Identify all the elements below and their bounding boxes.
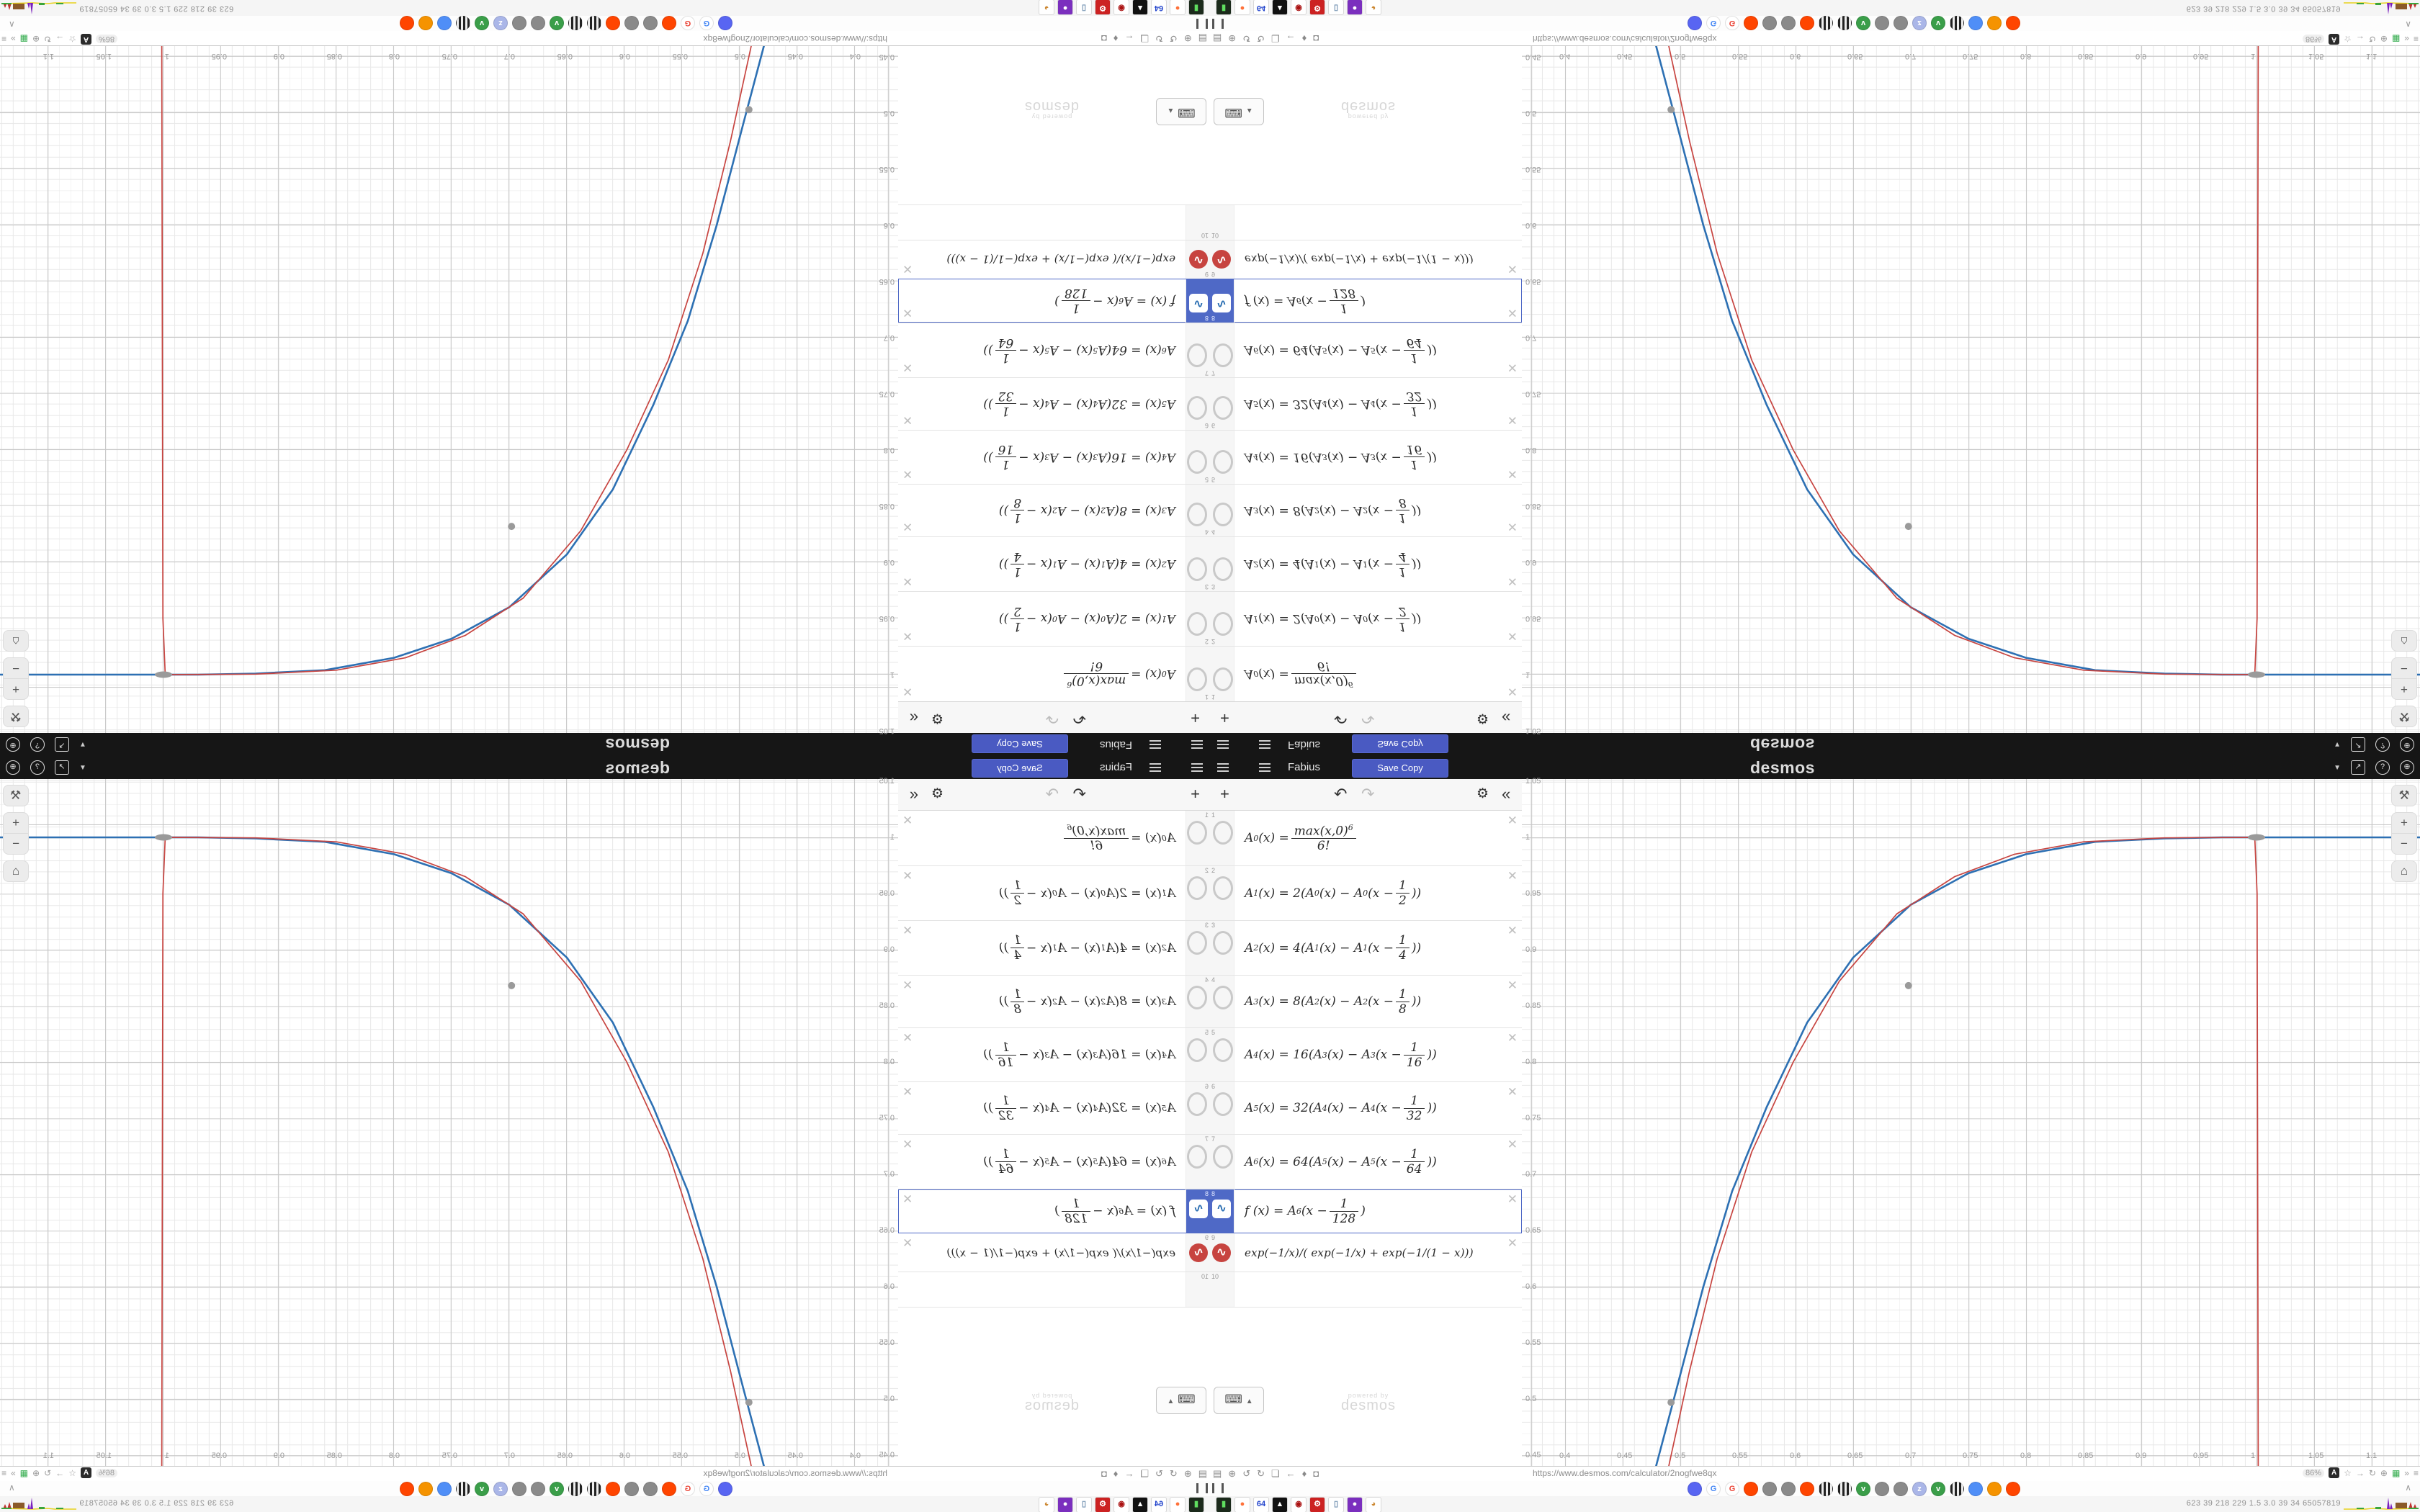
expression-row[interactable]: 8∿f (x) = A6(x − 1128)✕ <box>898 1189 1210 1233</box>
purple-cam-app-icon[interactable]: ● <box>1057 0 1073 15</box>
reddit-favicon[interactable] <box>606 16 620 30</box>
expression-math[interactable]: f (x) = A6(x − 1128) <box>920 279 1175 323</box>
expression-math[interactable]: f (x) = A6(x − 1128) <box>920 1189 1175 1233</box>
green-v-favicon[interactable]: v <box>1931 16 1945 30</box>
expression-row[interactable]: 6A5(x) = 32(A4(x) − A4(x − 132))✕ <box>898 377 1210 430</box>
back-reload-icon[interactable]: ↻ <box>1257 1467 1265 1480</box>
wrench-icon[interactable]: ⚒ <box>2392 786 2416 806</box>
delete-row-button[interactable]: ✕ <box>1507 360 1518 374</box>
lock-icon[interactable]: ◘ <box>1313 32 1319 45</box>
show-keypad-button[interactable]: ⌨ ▲ <box>1214 1387 1264 1414</box>
wrench-icon[interactable]: ⚒ <box>4 786 28 806</box>
hidden-plot-toggle[interactable] <box>1213 986 1233 1009</box>
bat-favicon[interactable] <box>512 1482 526 1496</box>
notepad-app-icon[interactable]: ▯ <box>1328 1497 1344 1512</box>
red-gear-app-icon[interactable]: ⚙ <box>1309 1497 1325 1512</box>
globe-icon[interactable]: ⊕ <box>1184 32 1192 45</box>
expression-math[interactable]: exp(−1/x)/( exp(−1/x) + exp(−1/(1 − x))) <box>920 1233 1175 1272</box>
translate-icon[interactable]: A <box>2329 1467 2339 1478</box>
expression-row[interactable]: 8∿f (x) = A6(x − 1128)✕ <box>898 279 1210 323</box>
zoom-out-button[interactable]: − <box>2392 833 2416 854</box>
expression-math[interactable]: A6(x) = 64(A5(x) − A5(x − 164)) <box>920 323 1175 377</box>
menu-icon[interactable]: ≡ <box>1 1468 6 1478</box>
blue-curve-icon[interactable]: ∿ <box>1212 294 1231 312</box>
firefox-app-icon[interactable]: ● <box>1170 1497 1186 1512</box>
floppy-64-app-icon[interactable]: 64 <box>1253 0 1269 15</box>
caret-down-icon[interactable]: ▼ <box>79 741 86 749</box>
delete-row-button[interactable]: ✕ <box>902 684 913 698</box>
menu-icon[interactable]: ≡ <box>2414 35 2419 45</box>
reload-icon[interactable]: ↻ <box>2369 35 2376 45</box>
delete-row-button[interactable]: ✕ <box>1507 574 1518 588</box>
expression-row[interactable]: 9∿exp(−1/x)/( exp(−1/x) + exp(−1/(1 − x)… <box>1210 1233 1522 1272</box>
add-expression-button[interactable]: + <box>1220 708 1229 727</box>
arrow-right-icon[interactable]: → <box>2356 35 2365 45</box>
bat-favicon[interactable] <box>512 16 526 30</box>
menu-hamburger-icon[interactable] <box>1216 761 1230 774</box>
terminal-app-icon[interactable]: ▮ <box>1216 0 1232 15</box>
hidden-plot-toggle[interactable] <box>1187 450 1207 474</box>
save-copy-button[interactable]: Save Copy <box>972 759 1068 778</box>
hidden-plot-toggle[interactable] <box>1187 876 1207 900</box>
palette-app-icon[interactable]: ◕ <box>1366 0 1381 15</box>
back-reload-icon[interactable]: ↻ <box>1155 1467 1163 1480</box>
menu-icon[interactable]: ≡ <box>2414 1468 2419 1478</box>
redo-button[interactable]: ↷ <box>1361 785 1374 804</box>
red-badge-app-icon[interactable]: ◉ <box>1291 1497 1307 1512</box>
reload-icon[interactable]: ↻ <box>44 35 51 45</box>
globe-icon[interactable]: ⊕ <box>6 737 20 752</box>
google-favicon[interactable]: G <box>681 1482 695 1496</box>
translate-icon[interactable]: A <box>81 34 91 45</box>
bat-favicon[interactable] <box>1894 16 1908 30</box>
hidden-plot-toggle[interactable] <box>1213 931 1233 955</box>
hidden-plot-toggle[interactable] <box>1213 612 1233 636</box>
delete-row-button[interactable]: ✕ <box>1507 1085 1518 1099</box>
palette-app-icon[interactable]: ◕ <box>1039 1497 1054 1512</box>
delete-row-button[interactable]: ✕ <box>1507 684 1518 698</box>
chat-favicon[interactable] <box>437 16 452 30</box>
discord-favicon[interactable] <box>1688 16 1702 30</box>
hidden-plot-toggle[interactable] <box>1213 343 1233 367</box>
url-text[interactable]: https://www.desmos.com/calculator/2nogfw… <box>1533 34 1716 44</box>
chevron-up-icon[interactable]: ∧ <box>9 19 15 30</box>
expression-math[interactable]: A0(x) = max(x,0)66! <box>920 647 1175 701</box>
bat-favicon[interactable] <box>531 16 545 30</box>
expression-math[interactable]: exp(−1/x)/( exp(−1/x) + exp(−1/(1 − x))) <box>1245 240 1500 279</box>
undo-button[interactable]: ↶ <box>1334 708 1347 727</box>
puzzle-icon[interactable]: ▦ <box>20 35 28 45</box>
expression-row[interactable]: 8∿f (x) = A6(x − 1128)✕ <box>1210 1189 1522 1233</box>
delete-row-button[interactable]: ✕ <box>902 261 913 276</box>
floppy-64-app-icon[interactable]: 64 <box>1151 1497 1167 1512</box>
green-v-favicon[interactable]: v <box>550 16 564 30</box>
graph-title[interactable]: Fabius <box>1100 761 1132 773</box>
trash-icon[interactable]: ▤ <box>1213 32 1222 45</box>
help-icon[interactable]: ? <box>30 737 45 752</box>
bat-favicon[interactable] <box>1762 1482 1777 1496</box>
folder-icon[interactable]: ❏ <box>1140 1467 1149 1480</box>
delete-row-button[interactable]: ✕ <box>1507 519 1518 534</box>
expression-row[interactable]: 3A2(x) = 4(A1(x) − A1(x − 14))✕ <box>1210 921 1522 976</box>
lock-icon[interactable]: ◘ <box>1313 1467 1319 1480</box>
zoom-level-chip[interactable]: 86% <box>96 1469 117 1477</box>
redo-button[interactable]: ↷ <box>1046 708 1059 727</box>
hidden-plot-toggle[interactable] <box>1187 343 1207 367</box>
sleep-favicon[interactable]: z <box>493 1482 508 1496</box>
globe-icon[interactable]: ⊕ <box>6 760 20 775</box>
zoom-in-button[interactable]: + <box>2392 813 2416 833</box>
add-expression-button[interactable]: + <box>1220 785 1229 804</box>
red-curve-icon[interactable]: ∿ <box>1189 1243 1208 1262</box>
graph-settings-gear-icon[interactable]: ⚙ <box>1476 708 1489 727</box>
globe-icon[interactable]: ⊕ <box>2380 35 2388 45</box>
shield-icon[interactable]: ♦ <box>1302 32 1307 45</box>
reddit-favicon[interactable] <box>400 16 414 30</box>
hidden-plot-toggle[interactable] <box>1213 1145 1233 1169</box>
menu-hamburger-icon[interactable] <box>1190 738 1204 751</box>
expression-math[interactable]: A5(x) = 32(A4(x) − A4(x − 132)) <box>920 378 1175 430</box>
back-reload-icon[interactable]: ↻ <box>1155 32 1163 45</box>
collapse-panel-button[interactable]: « <box>1502 708 1510 727</box>
expression-row[interactable]: 5A4(x) = 16(A3(x) − A3(x − 116))✕ <box>898 430 1210 484</box>
expression-row[interactable]: 5A4(x) = 16(A3(x) − A3(x − 116))✕ <box>1210 430 1522 484</box>
redo-button[interactable]: ↷ <box>1046 785 1059 804</box>
discord-favicon[interactable] <box>1688 1482 1702 1496</box>
green-v-favicon[interactable]: v <box>475 16 489 30</box>
reddit-favicon[interactable] <box>1800 1482 1814 1496</box>
expression-row[interactable]: 3A2(x) = 4(A1(x) − A1(x − 14))✕ <box>898 921 1210 976</box>
expression-math[interactable]: A1(x) = 2(A0(x) − A0(x − 12)) <box>920 866 1175 920</box>
expression-math[interactable]: f (x) = A6(x − 1128) <box>1245 1189 1500 1233</box>
bat-favicon[interactable] <box>1781 16 1796 30</box>
hidden-plot-toggle[interactable] <box>1187 557 1207 581</box>
hidden-plot-toggle[interactable] <box>1187 931 1207 955</box>
globe-icon[interactable]: ⊕ <box>2380 1468 2388 1478</box>
delete-row-button[interactable]: ✕ <box>1507 924 1518 938</box>
archive-favicon[interactable] <box>568 1482 583 1496</box>
gear-favicon[interactable] <box>418 1482 433 1496</box>
bat-favicon[interactable] <box>1875 1482 1889 1496</box>
discord-favicon[interactable] <box>718 1482 732 1496</box>
delete-row-button[interactable]: ✕ <box>902 467 913 481</box>
delete-row-button[interactable]: ✕ <box>902 519 913 534</box>
zoom-in-button[interactable]: + <box>4 679 28 699</box>
purple-cam-app-icon[interactable]: ● <box>1057 1497 1073 1512</box>
home-button[interactable]: ⌂ <box>2392 631 2416 651</box>
delete-row-button[interactable]: ✕ <box>1507 1236 1518 1251</box>
reload-icon[interactable]: ↺ <box>1170 32 1178 45</box>
red-gear-app-icon[interactable]: ⚙ <box>1095 1497 1111 1512</box>
reddit-favicon[interactable] <box>1744 16 1758 30</box>
floppy-64-app-icon[interactable]: 64 <box>1151 0 1167 15</box>
collapse-panel-button[interactable]: « <box>1502 785 1510 804</box>
expression-math[interactable]: A6(x) = 64(A5(x) − A5(x − 164)) <box>1245 323 1500 377</box>
hidden-plot-toggle[interactable] <box>1187 1092 1207 1116</box>
delete-row-button[interactable]: ✕ <box>1507 261 1518 276</box>
expression-row[interactable]: 4A3(x) = 8(A2(x) − A2(x − 18))✕ <box>898 976 1210 1028</box>
bat-favicon[interactable] <box>643 1482 658 1496</box>
trash-icon[interactable]: ▤ <box>1198 32 1207 45</box>
expression-math[interactable]: f (x) = A6(x − 1128) <box>1245 279 1500 323</box>
expression-row[interactable]: 9∿exp(−1/x)/( exp(−1/x) + exp(−1/(1 − x)… <box>898 1233 1210 1272</box>
expression-row[interactable]: 4A3(x) = 8(A2(x) − A2(x − 18))✕ <box>1210 484 1522 536</box>
share-icon[interactable]: ↗ <box>2351 760 2365 775</box>
green-v-favicon[interactable]: v <box>475 1482 489 1496</box>
hidden-plot-toggle[interactable] <box>1213 1092 1233 1116</box>
menu-hamburger-icon[interactable] <box>1190 761 1204 774</box>
expression-math[interactable] <box>1245 205 1500 240</box>
delete-row-button[interactable]: ✕ <box>1507 1138 1518 1152</box>
expression-math[interactable] <box>920 1272 1175 1307</box>
expression-math[interactable]: A3(x) = 8(A2(x) − A2(x − 18)) <box>920 976 1175 1027</box>
reddit-favicon[interactable] <box>400 1482 414 1496</box>
expression-row[interactable]: 7A6(x) = 64(A5(x) − A5(x − 164))✕ <box>898 1135 1210 1189</box>
undo-button[interactable]: ↶ <box>1073 785 1086 804</box>
delete-row-button[interactable]: ✕ <box>902 360 913 374</box>
list-hamburger-icon[interactable] <box>1258 761 1272 774</box>
bat-favicon[interactable] <box>1781 1482 1796 1496</box>
green-v-favicon[interactable]: v <box>1931 1482 1945 1496</box>
expression-math[interactable]: A4(x) = 16(A3(x) − A3(x − 116)) <box>1245 1028 1500 1081</box>
expression-row[interactable]: 6A5(x) = 32(A4(x) − A4(x − 132))✕ <box>898 1082 1210 1135</box>
shield-icon[interactable]: ♦ <box>1113 32 1119 45</box>
gear-favicon[interactable] <box>418 16 433 30</box>
folder-icon[interactable]: ❏ <box>1271 32 1280 45</box>
help-icon[interactable]: ? <box>30 760 45 775</box>
lock-icon[interactable]: ◘ <box>1101 1467 1107 1480</box>
wolf-app-icon[interactable]: ▲ <box>1132 1497 1148 1512</box>
star-icon[interactable]: ☆ <box>2344 1468 2352 1478</box>
wrench-icon[interactable]: ⚒ <box>2392 706 2416 726</box>
reload-icon[interactable]: ↺ <box>1170 1467 1178 1480</box>
floppy-64-app-icon[interactable]: 64 <box>1253 1497 1269 1512</box>
gear-favicon[interactable] <box>1987 1482 2002 1496</box>
delete-row-button[interactable]: ✕ <box>1507 1192 1518 1207</box>
reddit-favicon[interactable] <box>662 16 676 30</box>
shield-icon[interactable]: ♦ <box>1113 1467 1119 1480</box>
expression-math[interactable]: A1(x) = 2(A0(x) − A0(x − 12)) <box>920 592 1175 646</box>
expression-row[interactable]: 2A1(x) = 2(A0(x) − A0(x − 12))✕ <box>898 866 1210 921</box>
expression-math[interactable]: A2(x) = 4(A1(x) − A1(x − 14)) <box>920 921 1175 975</box>
archive-favicon[interactable] <box>587 16 601 30</box>
url-text[interactable]: https://www.desmos.com/calculator/2nogfw… <box>1533 1468 1716 1478</box>
expression-row[interactable]: 6A5(x) = 32(A4(x) − A4(x − 132))✕ <box>1210 377 1522 430</box>
overflow-icon[interactable]: » <box>11 1468 16 1478</box>
hidden-plot-toggle[interactable] <box>1213 557 1233 581</box>
reddit-favicon[interactable] <box>1744 1482 1758 1496</box>
undo-button[interactable]: ↶ <box>1073 708 1086 727</box>
chevron-up-icon[interactable]: ∧ <box>2405 1482 2411 1493</box>
expression-math[interactable]: A4(x) = 16(A3(x) − A3(x − 116)) <box>920 1028 1175 1081</box>
graph-paper[interactable]: 1.0510.950.90.850.80.750.70.650.60.550.5… <box>1522 779 2420 1466</box>
home-button[interactable]: ⌂ <box>4 861 28 881</box>
blue-curve-icon[interactable]: ∿ <box>1189 1200 1208 1218</box>
google-favicon[interactable]: G <box>699 1482 714 1496</box>
delete-row-button[interactable]: ✕ <box>902 1138 913 1152</box>
wolf-app-icon[interactable]: ▲ <box>1272 1497 1288 1512</box>
expression-row[interactable]: 1A0(x) = max(x,0)66!✕ <box>898 646 1210 701</box>
hidden-plot-toggle[interactable] <box>1187 667 1207 691</box>
star-icon[interactable]: ☆ <box>68 35 76 45</box>
expression-math[interactable]: exp(−1/x)/( exp(−1/x) + exp(−1/(1 − x))) <box>1245 1233 1500 1272</box>
list-hamburger-icon[interactable] <box>1148 761 1162 774</box>
show-keypad-button[interactable]: ⌨ ▲ <box>1214 98 1264 125</box>
red-curve-icon[interactable]: ∿ <box>1189 250 1208 269</box>
back-arrow-icon[interactable]: ← <box>1124 32 1134 45</box>
google-favicon[interactable]: G <box>1725 16 1739 30</box>
hidden-plot-toggle[interactable] <box>1187 821 1207 845</box>
puzzle-icon[interactable]: ▦ <box>2392 35 2400 45</box>
expression-math[interactable]: exp(−1/x)/( exp(−1/x) + exp(−1/(1 − x))) <box>920 240 1175 279</box>
zoom-out-button[interactable]: − <box>2392 658 2416 679</box>
bat-favicon[interactable] <box>624 16 639 30</box>
google-favicon[interactable]: G <box>1706 16 1721 30</box>
star-icon[interactable]: ☆ <box>2344 35 2352 45</box>
hidden-plot-toggle[interactable] <box>1213 876 1233 900</box>
expression-row[interactable]: 2A1(x) = 2(A0(x) − A0(x − 12))✕ <box>1210 866 1522 921</box>
google-favicon[interactable]: G <box>1725 1482 1739 1496</box>
expression-math[interactable]: A4(x) = 16(A3(x) − A3(x − 116)) <box>1245 431 1500 484</box>
overflow-icon[interactable]: » <box>2404 1468 2409 1478</box>
graph-title[interactable]: Fabius <box>1100 739 1132 751</box>
discord-favicon[interactable] <box>718 16 732 30</box>
puzzle-icon[interactable]: ▦ <box>2392 1468 2400 1478</box>
notepad-app-icon[interactable]: ▯ <box>1076 1497 1092 1512</box>
url-text[interactable]: https://www.desmos.com/calculator/2nogfw… <box>704 1468 887 1478</box>
terminal-app-icon[interactable]: ▮ <box>1188 0 1204 15</box>
expression-row[interactable]: 10 <box>1210 1272 1522 1308</box>
delete-row-button[interactable]: ✕ <box>902 629 913 643</box>
expression-row[interactable]: 10 <box>1210 204 1522 240</box>
globe-icon[interactable]: ⊕ <box>1184 1467 1192 1480</box>
expression-math[interactable]: A1(x) = 2(A0(x) − A0(x − 12)) <box>1245 592 1500 646</box>
expression-math[interactable] <box>1245 1272 1500 1307</box>
trash-icon[interactable]: ▤ <box>1198 1467 1207 1480</box>
delete-row-button[interactable]: ✕ <box>1507 814 1518 828</box>
zoom-in-button[interactable]: + <box>4 813 28 833</box>
back-arrow-icon[interactable]: ← <box>1124 1467 1134 1480</box>
expression-row[interactable]: 1A0(x) = max(x,0)66!✕ <box>1210 811 1522 866</box>
green-v-favicon[interactable]: v <box>550 1482 564 1496</box>
back-arrow-icon[interactable]: ← <box>1286 1467 1296 1480</box>
sleep-favicon[interactable]: z <box>1912 1482 1927 1496</box>
google-favicon[interactable]: G <box>681 16 695 30</box>
green-v-favicon[interactable]: v <box>1856 1482 1870 1496</box>
graph-title[interactable]: Fabius <box>1288 761 1320 773</box>
delete-row-button[interactable]: ✕ <box>902 1236 913 1251</box>
reload-icon[interactable]: ↻ <box>2369 1468 2376 1478</box>
purple-cam-app-icon[interactable]: ● <box>1347 0 1363 15</box>
delete-row-button[interactable]: ✕ <box>902 1031 913 1045</box>
undo-button[interactable]: ↶ <box>1334 785 1347 804</box>
chat-favicon[interactable] <box>437 1482 452 1496</box>
expression-row[interactable]: 4A3(x) = 8(A2(x) − A2(x − 18))✕ <box>1210 976 1522 1028</box>
terminal-app-icon[interactable]: ▮ <box>1188 1497 1204 1512</box>
expression-row[interactable]: 1A0(x) = max(x,0)66!✕ <box>1210 646 1522 701</box>
wrench-icon[interactable]: ⚒ <box>4 706 28 726</box>
globe-icon[interactable]: ⊕ <box>1228 1467 1236 1480</box>
hidden-plot-toggle[interactable] <box>1213 1038 1233 1062</box>
puzzle-icon[interactable]: ▦ <box>20 1468 28 1478</box>
zoom-out-button[interactable]: − <box>4 833 28 854</box>
list-hamburger-icon[interactable] <box>1148 738 1162 751</box>
overflow-icon[interactable]: » <box>11 35 16 45</box>
red-curve-icon[interactable]: ∿ <box>1212 250 1231 269</box>
help-icon[interactable]: ? <box>2375 760 2390 775</box>
chevron-up-icon[interactable]: ∧ <box>2405 19 2411 30</box>
expression-math[interactable]: A2(x) = 4(A1(x) − A1(x − 14)) <box>1245 537 1500 591</box>
archive-favicon[interactable] <box>1819 16 1833 30</box>
expression-row[interactable]: 9∿exp(−1/x)/( exp(−1/x) + exp(−1/(1 − x)… <box>898 240 1210 279</box>
hidden-plot-toggle[interactable] <box>1213 503 1233 526</box>
archive-favicon[interactable] <box>1837 16 1852 30</box>
delete-row-button[interactable]: ✕ <box>1507 413 1518 427</box>
firefox-app-icon[interactable]: ● <box>1234 0 1250 15</box>
expression-math[interactable]: A2(x) = 4(A1(x) − A1(x − 14)) <box>1245 921 1500 975</box>
globe-icon[interactable]: ⊕ <box>32 35 40 45</box>
expression-math[interactable]: A3(x) = 8(A2(x) − A2(x − 18)) <box>1245 485 1500 536</box>
google-favicon[interactable]: G <box>1706 1482 1721 1496</box>
reddit-favicon[interactable] <box>2006 1482 2020 1496</box>
chevron-up-icon[interactable]: ∧ <box>9 1482 15 1493</box>
hidden-plot-toggle[interactable] <box>1187 1145 1207 1169</box>
hidden-plot-toggle[interactable] <box>1187 396 1207 420</box>
expression-math[interactable]: A0(x) = max(x,0)66! <box>920 811 1175 865</box>
expression-math[interactable]: A5(x) = 32(A4(x) − A4(x − 132)) <box>1245 1082 1500 1134</box>
expression-row[interactable]: 2A1(x) = 2(A0(x) − A0(x − 12))✕ <box>1210 591 1522 646</box>
graph-settings-gear-icon[interactable]: ⚙ <box>931 785 944 804</box>
show-keypad-button[interactable]: ⌨ ▲ <box>1156 98 1206 125</box>
delete-row-button[interactable]: ✕ <box>1507 467 1518 481</box>
caret-down-icon[interactable]: ▼ <box>2334 741 2341 749</box>
purple-cam-app-icon[interactable]: ● <box>1347 1497 1363 1512</box>
overflow-icon[interactable]: » <box>2404 35 2409 45</box>
lock-icon[interactable]: ◘ <box>1101 32 1107 45</box>
bat-favicon[interactable] <box>624 1482 639 1496</box>
delete-row-button[interactable]: ✕ <box>1507 305 1518 320</box>
graph-paper[interactable]: 1.0510.950.90.850.80.750.70.650.60.550.5… <box>0 779 898 1466</box>
red-gear-app-icon[interactable]: ⚙ <box>1095 0 1111 15</box>
delete-row-button[interactable]: ✕ <box>902 978 913 993</box>
url-text[interactable]: https://www.desmos.com/calculator/2nogfw… <box>704 34 887 44</box>
menu-icon[interactable]: ≡ <box>1 35 6 45</box>
blue-curve-icon[interactable]: ∿ <box>1212 1200 1231 1218</box>
reload-icon[interactable]: ↺ <box>1242 32 1250 45</box>
hidden-plot-toggle[interactable] <box>1213 667 1233 691</box>
save-copy-button[interactable]: Save Copy <box>1352 734 1448 753</box>
archive-favicon[interactable] <box>568 16 583 30</box>
archive-favicon[interactable] <box>1819 1482 1833 1496</box>
notepad-app-icon[interactable]: ▯ <box>1328 0 1344 15</box>
hidden-plot-toggle[interactable] <box>1187 503 1207 526</box>
delete-row-button[interactable]: ✕ <box>902 924 913 938</box>
expression-math[interactable]: A5(x) = 32(A4(x) − A4(x − 132)) <box>1245 378 1500 430</box>
arrow-right-icon[interactable]: → <box>2356 1468 2365 1478</box>
translate-icon[interactable]: A <box>2329 34 2339 45</box>
red-curve-icon[interactable]: ∿ <box>1212 1243 1231 1262</box>
bat-favicon[interactable] <box>531 1482 545 1496</box>
delete-row-button[interactable]: ✕ <box>902 869 913 883</box>
archive-favicon[interactable] <box>456 1482 470 1496</box>
firefox-app-icon[interactable]: ● <box>1234 1497 1250 1512</box>
expression-math[interactable]: A0(x) = max(x,0)66! <box>1245 647 1500 701</box>
globe-icon[interactable]: ⊕ <box>2400 760 2414 775</box>
expression-math[interactable]: A0(x) = max(x,0)66! <box>1245 811 1500 865</box>
expression-math[interactable]: A6(x) = 64(A5(x) − A5(x − 164)) <box>1245 1135 1500 1189</box>
reddit-favicon[interactable] <box>606 1482 620 1496</box>
expression-row[interactable]: 8∿f (x) = A6(x − 1128)✕ <box>1210 279 1522 323</box>
